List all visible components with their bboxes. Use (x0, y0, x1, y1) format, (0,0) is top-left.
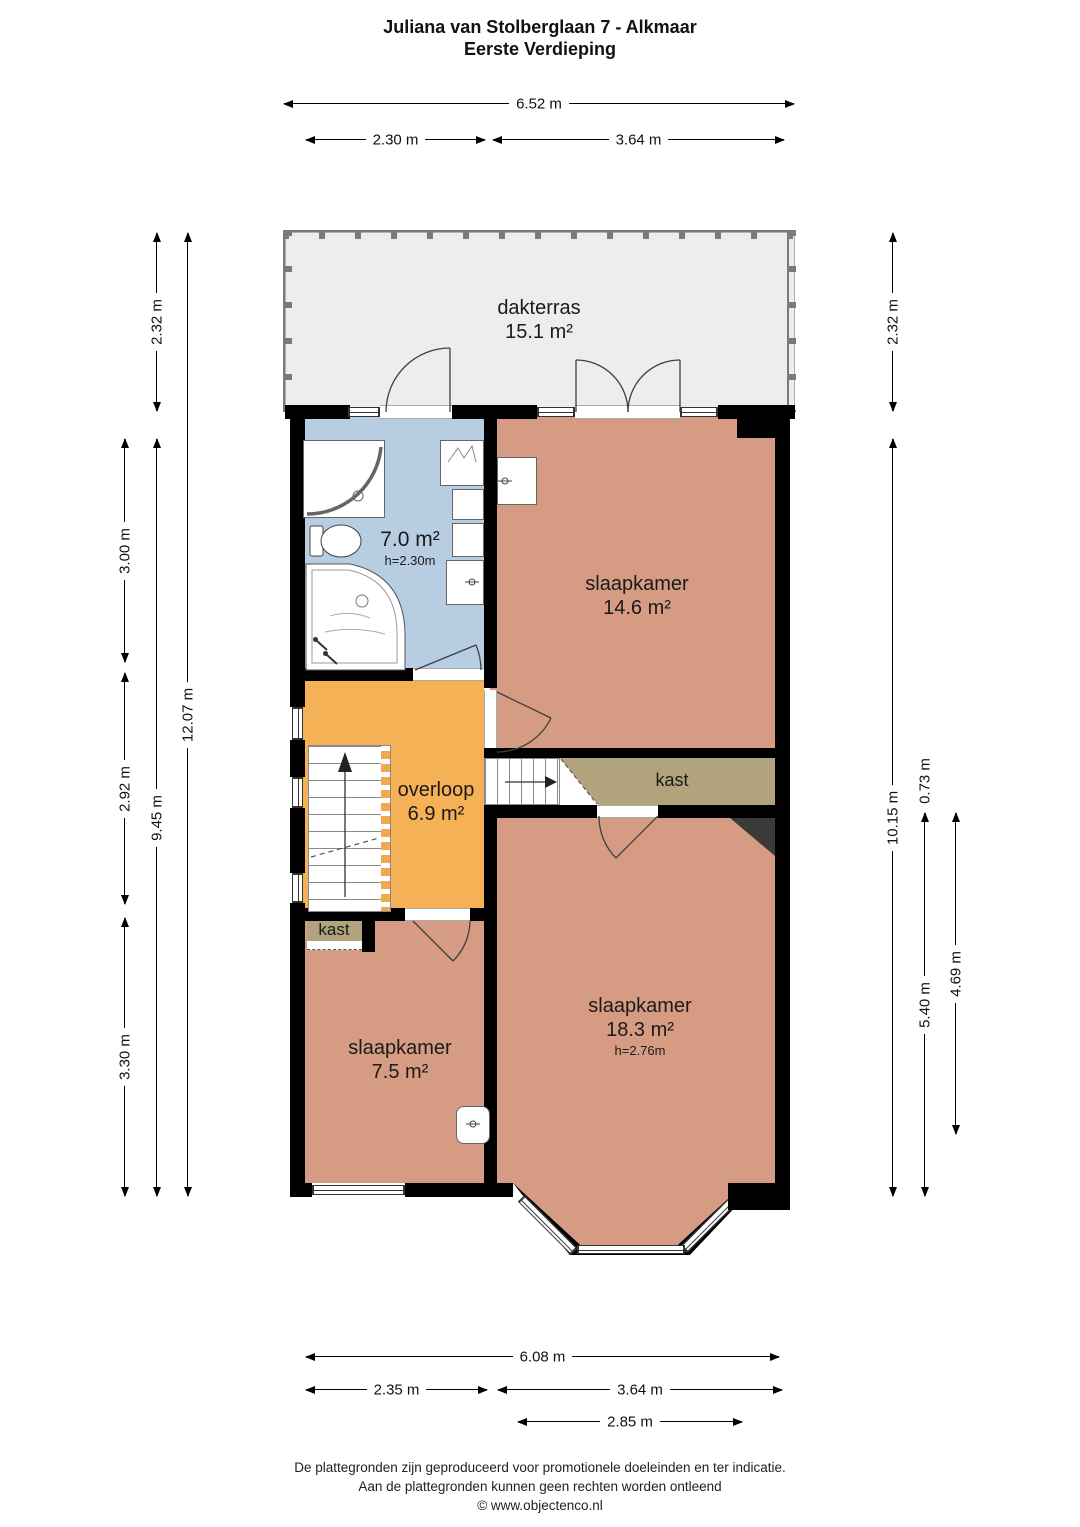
door-opening-slaapkamer2 (597, 805, 658, 818)
dim-right-4-69: 4.69 m (948, 812, 964, 1135)
floorplan-page: Juliana van Stolberglaan 7 - Alkmaar Eer… (0, 0, 1080, 1527)
room-area: 15.1 m² (497, 320, 580, 344)
footer-disclaimer-2: Aan de plattegronden kunnen geen rechten… (0, 1478, 1080, 1497)
label-kast1: kast (655, 770, 688, 792)
dim-label: 2.35 m (367, 1382, 427, 1399)
dim-top-total: 6.52 m (283, 96, 795, 112)
room-area: 7.0 m² (380, 527, 440, 553)
room-area: 18.3 m² (588, 1018, 691, 1042)
dim-label: 6.08 m (513, 1349, 573, 1366)
dim-left-3-00: 3.00 m (117, 438, 133, 663)
dim-label: 2.32 m (885, 293, 902, 351)
wall-interior (290, 668, 413, 681)
dim-right-0-73: 0.73 m (917, 752, 933, 810)
room-area: 7.5 m² (348, 1060, 451, 1084)
dim-label: 2.92 m (117, 760, 134, 818)
label-slaapkamer1: slaapkamer 14.6 m² (585, 572, 688, 621)
room-name: overloop (398, 778, 475, 802)
wall-left (290, 740, 305, 777)
wall-interior (484, 412, 497, 688)
slaapkamer3-sink (456, 1106, 490, 1144)
dim-top-right: 3.64 m (492, 132, 785, 148)
terrace-railing-top (283, 230, 795, 239)
dim-label: 3.64 m (610, 1382, 670, 1399)
window-top-1 (348, 407, 380, 417)
dim-bottom-left: 2.35 m (305, 1382, 488, 1398)
dim-label: 10.15 m (885, 784, 902, 850)
room-name: slaapkamer (588, 994, 691, 1018)
dim-label: 2.30 m (366, 132, 426, 149)
wall-interior (470, 908, 497, 921)
dim-left-3-30: 3.30 m (117, 917, 133, 1197)
room-name: slaapkamer (585, 572, 688, 596)
bathroom-cabinet-1 (440, 440, 484, 486)
slaapkamer1-sink (497, 457, 537, 505)
window-left-1 (292, 707, 303, 740)
dim-bottom-right: 3.64 m (497, 1382, 783, 1398)
room-area: 6.9 m² (398, 802, 475, 826)
dim-label: 3.64 m (609, 132, 669, 149)
page-title-floor: Eerste Verdieping (0, 38, 1080, 60)
door-opening-terrace1 (380, 405, 452, 419)
room-name: dakterras (497, 296, 580, 320)
label-kast2: kast (318, 920, 349, 941)
bathroom-cabinet-2 (452, 489, 484, 520)
dim-right-10-15: 10.15 m (885, 438, 901, 1197)
wall-kast2 (362, 921, 375, 952)
dim-left-total: 12.07 m (180, 232, 196, 1197)
wall-interior (658, 805, 775, 818)
terrace-railing-left (283, 230, 292, 412)
door-opening-slaapkamer1 (484, 690, 497, 750)
room-height: h=2.30m (380, 553, 440, 569)
wall-left (290, 903, 305, 1197)
label-slaapkamer2: slaapkamer 18.3 m² h=2.76m (588, 994, 691, 1059)
staircase-railing (381, 745, 391, 912)
dim-top-left: 2.30 m (305, 132, 486, 148)
room-name: slaapkamer (348, 1036, 451, 1060)
dim-left-terrace: 2.32 m (149, 232, 165, 412)
dim-bottom-bay: 2.85 m (517, 1414, 743, 1430)
wall-segment (290, 1183, 312, 1197)
label-badkamer: 7.0 m² h=2.30m (380, 527, 440, 568)
door-opening-slaapkamer3 (405, 908, 470, 921)
bay-window-center (577, 1245, 685, 1254)
wall-right (775, 405, 790, 1197)
window-left-2 (292, 777, 303, 808)
dim-label: 3.30 m (117, 1028, 134, 1086)
wall-interior (484, 805, 597, 818)
wall-segment (405, 1183, 513, 1197)
room-height: h=2.76m (588, 1043, 691, 1059)
kast2-sliding-front (307, 941, 362, 950)
dim-left-2-92: 2.92 m (117, 672, 133, 905)
dim-label: 4.69 m (948, 945, 965, 1003)
bathroom-cabinet-3 (452, 523, 484, 557)
door-opening-badkamer (413, 668, 484, 681)
room-area: 14.6 m² (585, 596, 688, 620)
wall-corner-bottomright (728, 1183, 790, 1210)
shower (303, 440, 385, 518)
dim-left-9-45: 9.45 m (149, 438, 165, 1197)
dim-label: 3.00 m (117, 522, 134, 580)
bathroom-sink-unit (446, 560, 484, 605)
terrace-railing-right (787, 230, 796, 412)
dim-bottom-total: 6.08 m (305, 1349, 780, 1365)
page-title-address: Juliana van Stolberglaan 7 - Alkmaar (0, 16, 1080, 38)
dim-label: 5.40 m (917, 976, 934, 1034)
footer-copyright: © www.objectenco.nl (0, 1497, 1080, 1516)
dim-label: 12.07 m (180, 681, 197, 747)
dim-label: 6.52 m (509, 96, 569, 113)
window-bottom-left (312, 1185, 405, 1195)
label-dakterras: dakterras 15.1 m² (497, 296, 580, 345)
window-top-2 (537, 407, 575, 417)
dim-right-5-40: 5.40 m (917, 812, 933, 1197)
window-top-3 (680, 407, 718, 417)
dim-label: 2.32 m (149, 293, 166, 351)
door-opening-terrace2 (575, 405, 680, 419)
dim-label: 9.45 m (149, 789, 166, 847)
label-overloop: overloop 6.9 m² (398, 778, 475, 827)
label-slaapkamer3: slaapkamer 7.5 m² (348, 1036, 451, 1085)
dim-label: 2.85 m (600, 1414, 660, 1431)
dim-right-terrace: 2.32 m (885, 232, 901, 412)
room-name: kast (655, 770, 688, 792)
dim-label: 0.73 m (917, 752, 934, 810)
footer-disclaimer-1: De plattegronden zijn geproduceerd voor … (0, 1459, 1080, 1478)
window-left-3 (292, 873, 303, 903)
wall-left (290, 808, 305, 873)
room-name: kast (318, 920, 349, 941)
staircase-upper (484, 758, 560, 805)
wall-interior (484, 748, 775, 758)
staircase-main (308, 745, 382, 912)
